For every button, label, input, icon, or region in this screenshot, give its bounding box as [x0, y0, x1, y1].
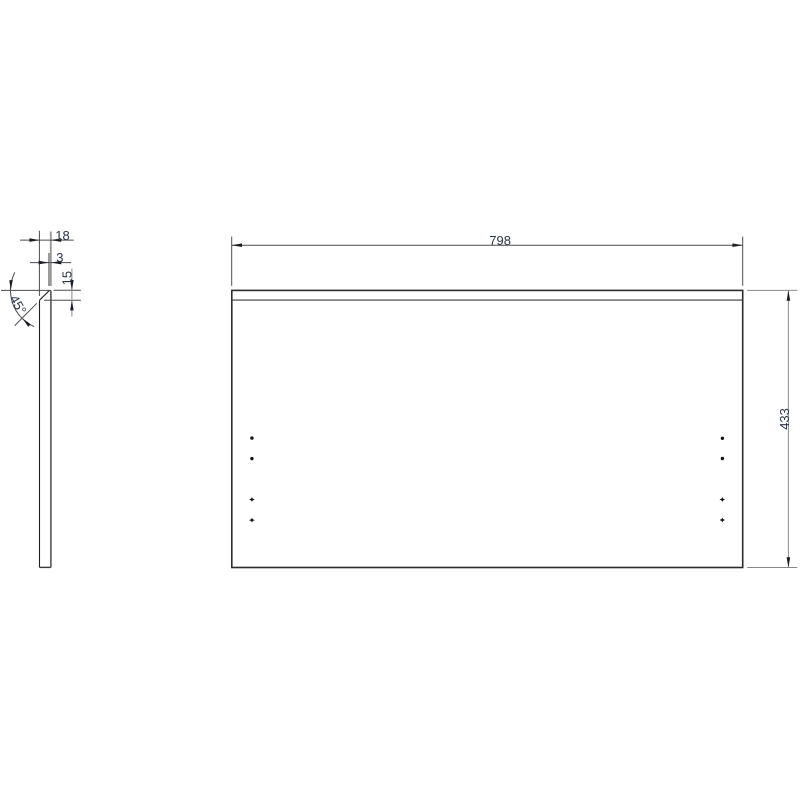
- svg-text:15: 15: [60, 271, 75, 285]
- svg-text:18: 18: [55, 228, 69, 243]
- svg-text:798: 798: [489, 233, 511, 248]
- svg-text:433: 433: [777, 408, 792, 430]
- svg-text:3: 3: [56, 250, 63, 265]
